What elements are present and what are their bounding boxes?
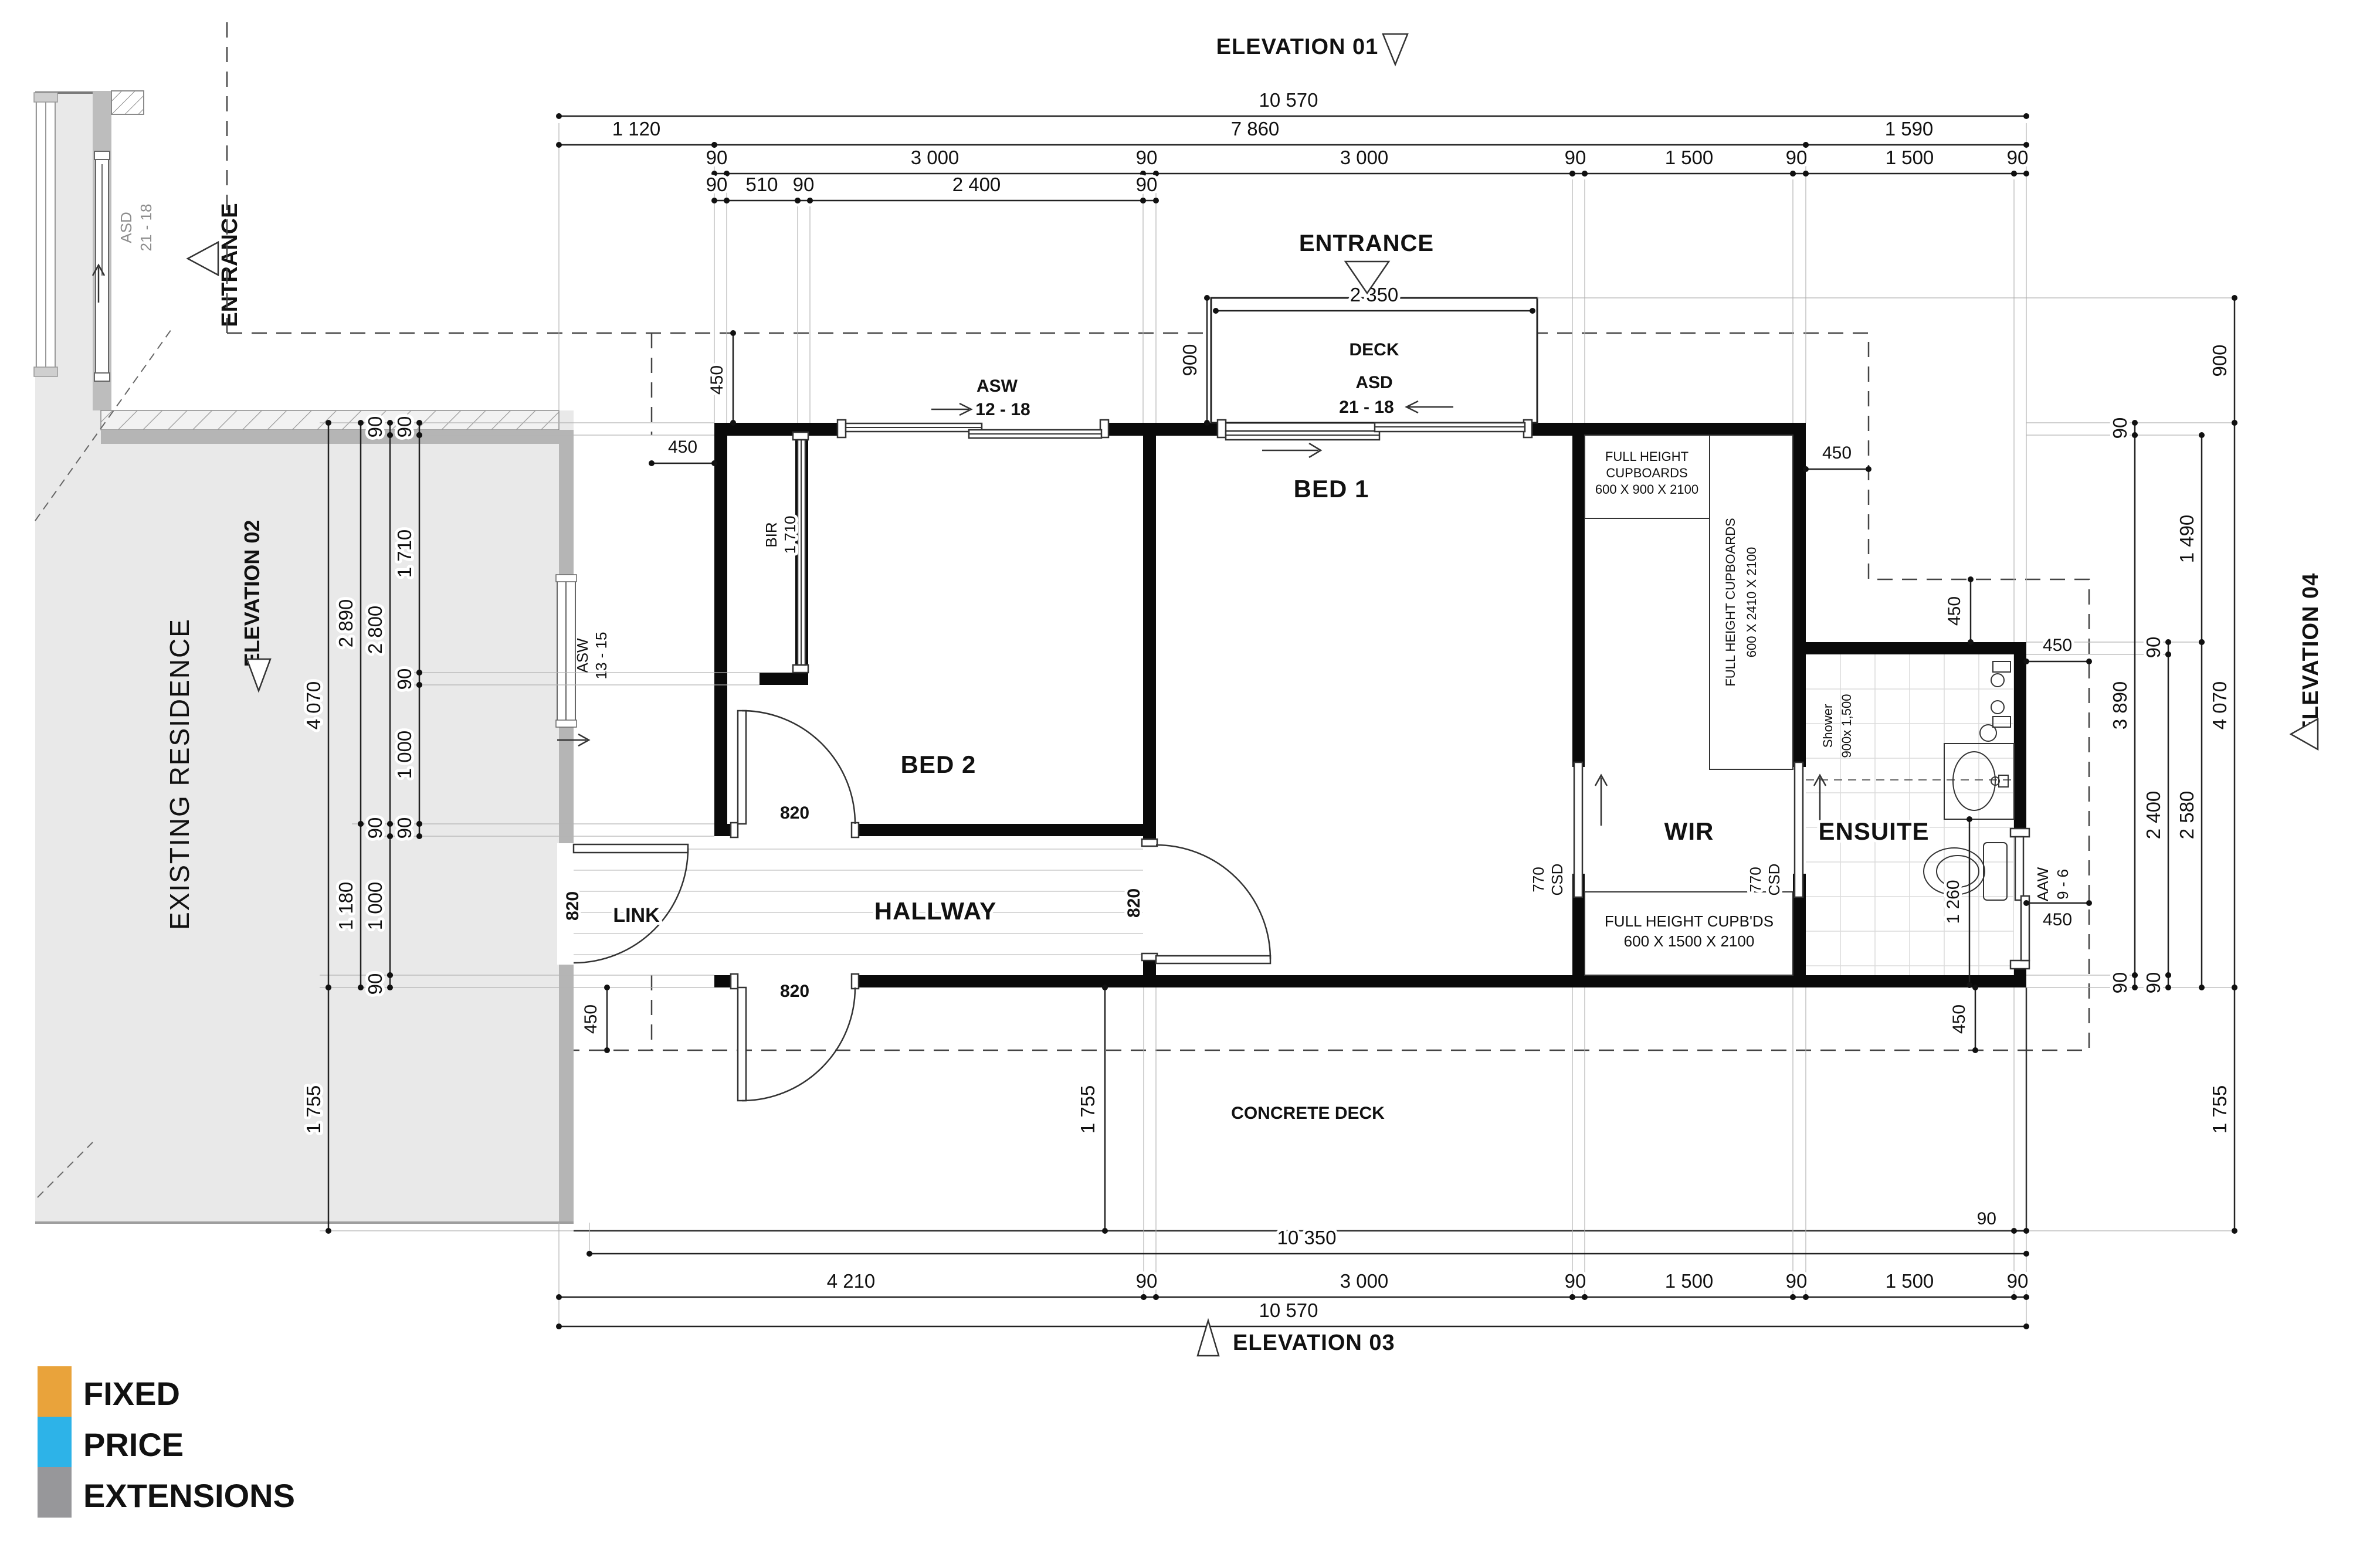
dim-left4-1000: 1 000 — [394, 731, 415, 779]
wall-hallway-north — [852, 824, 1156, 836]
dim-450-east-bottom: 450 — [2043, 910, 2072, 929]
dim-left3-90a: 90 — [364, 416, 386, 438]
dim-top3-90d: 90 — [1786, 147, 1808, 168]
dim-450-link-eave: 450 — [668, 437, 697, 457]
floor-plan-drawing: ASD 21 - 18 ENTRANCE ELEVATION 02 EXISTI… — [0, 0, 2353, 1568]
deck-label: DECK — [1349, 340, 1399, 359]
wall-wir-east — [1793, 423, 1806, 767]
elevation-02-label: ELEVATION 02 — [240, 520, 264, 667]
cupboard-900-label-1: FULL HEIGHT — [1605, 449, 1689, 464]
dim-left4-90a: 90 — [394, 416, 415, 438]
shower-label-1: Shower — [1820, 704, 1835, 748]
dim-top4-2400: 2 400 — [952, 174, 1001, 195]
wall-east — [2014, 642, 2026, 836]
dim-top4-90a: 90 — [706, 174, 728, 195]
cupboard-1500-label-2: 600 X 1500 X 2100 — [1624, 932, 1755, 950]
existing-wall-east — [559, 430, 574, 1223]
asd-tag-type: ASD — [1355, 373, 1392, 392]
csd-wir-label-2: CSD — [1548, 864, 1566, 896]
asw-13-15-label-type: ASW — [574, 638, 591, 673]
room-label-bed2: BED 2 — [901, 751, 977, 778]
dim-left4-1710: 1 710 — [394, 530, 415, 578]
room-label-bed1: BED 1 — [1294, 475, 1369, 503]
concrete-deck: CONCRETE DECK — [574, 987, 2026, 1231]
dim-450-bed2-eave: 450 — [707, 365, 727, 395]
dim-left3-90c: 90 — [364, 973, 386, 995]
wall-bed2-east — [1143, 423, 1156, 846]
aaw-tag-size: 9 - 6 — [2054, 869, 2071, 900]
asw-13-15-label-size: 13 - 15 — [592, 632, 610, 680]
existing-wall-end-cap — [111, 91, 144, 114]
dim-top4-510: 510 — [745, 174, 778, 195]
entrance-west-label: ENTRANCE — [218, 203, 242, 327]
dim-450-wir-eave: 450 — [1822, 443, 1852, 463]
dim-top-1590: 1 590 — [1885, 118, 1934, 140]
dim-450-south-right: 450 — [1949, 1004, 1969, 1034]
dim-bottom-10570: 10 570 — [1259, 1299, 1318, 1321]
dim-top3-1500a: 1 500 — [1665, 147, 1714, 168]
dim-right3-2580: 2 580 — [2176, 791, 2198, 840]
existing-residence-label: EXISTING RESIDENCE — [164, 618, 195, 930]
elevation-03-label: ELEVATION 03 — [1233, 1331, 1395, 1355]
dim-left4-90b: 90 — [394, 668, 415, 690]
dim-left-2890: 2 890 — [335, 599, 357, 648]
dim-right1-3890: 3 890 — [2109, 681, 2131, 730]
csd-ensuite-label-1: 770 — [1747, 867, 1764, 892]
aaw-tag-type: AAW — [2034, 867, 2052, 901]
dim-top-7860: 7 860 — [1231, 118, 1280, 140]
existing-asd-label-type: ASD — [117, 212, 135, 243]
dim-left3-2800: 2 800 — [364, 606, 386, 654]
dim-left-1755: 1 755 — [303, 1085, 324, 1134]
logo-text-fixed: FIXED — [83, 1375, 180, 1412]
logo-text-extensions: EXTENSIONS — [83, 1477, 295, 1514]
dim-right2-90b: 90 — [2142, 972, 2164, 994]
dim-chains-right: 90 3 890 90 90 2 400 90 1 490 2 580 900 … — [2109, 295, 2323, 1234]
dim-right1-90b: 90 — [2109, 972, 2131, 994]
logo-blue-square — [38, 1417, 72, 1467]
cupboard-900-label-2: CUPBOARDS — [1606, 466, 1687, 480]
dim-left3-1000: 1 000 — [364, 882, 386, 931]
bir-length-label: 1 710 — [781, 515, 799, 554]
deck-door-820: 820 — [780, 982, 809, 1001]
bir-label: BIR — [762, 522, 780, 547]
cupboard-2410-label-2: 600 X 2410 X 2100 — [1744, 547, 1759, 657]
room-label-link: LINK — [613, 904, 660, 926]
shower-label-2: 900x 1,500 — [1839, 694, 1854, 758]
bed1-door-820: 820 — [1124, 888, 1144, 918]
room-label-wir: WIR — [1664, 817, 1714, 845]
dim-bottom-10350: 10 350 — [1277, 1227, 1337, 1248]
cupboard-900-label-3: 600 X 900 X 2100 — [1595, 482, 1698, 497]
elevation-01-triangle-icon — [1383, 34, 1408, 65]
dim-top4-90c: 90 — [1136, 174, 1158, 195]
dim-top3-3000a: 3 000 — [911, 147, 959, 168]
dim-bot-90d: 90 — [2007, 1270, 2029, 1292]
dim-right2-90a: 90 — [2142, 637, 2164, 659]
dim-top3-90a: 90 — [706, 147, 728, 168]
bed2-door-820: 820 — [780, 803, 809, 823]
wall-west — [714, 423, 727, 836]
dim-left4-90c: 90 — [394, 817, 415, 839]
dim-top4-90b: 90 — [793, 174, 815, 195]
csd-wir-label-1: 770 — [1530, 867, 1547, 892]
dim-left-1180: 1 180 — [335, 882, 357, 931]
logo-orange-square — [38, 1366, 72, 1417]
dim-top3-90c: 90 — [1565, 147, 1586, 168]
asw-12-18-arrow-icon — [931, 403, 971, 415]
dim-bot-3000: 3 000 — [1340, 1270, 1389, 1292]
dim-right2-2400: 2 400 — [2142, 791, 2164, 840]
dim-chains-top: 10 570 1 120 7 860 1 590 90 3 000 90 3 0… — [556, 34, 2029, 203]
entrance-top-label: ENTRANCE — [1299, 230, 1434, 256]
csd-ensuite-label-2: CSD — [1765, 864, 1783, 896]
existing-residence-footprint — [35, 91, 574, 1223]
dim-top-1120: 1 120 — [612, 118, 661, 140]
dim-left-4070: 4 070 — [303, 681, 324, 730]
dim-top-10570: 10 570 — [1259, 89, 1318, 111]
dim-1260-toilet: 1 260 — [1944, 880, 1963, 924]
dim-right4-4070: 4 070 — [2209, 681, 2230, 730]
dim-top3-90e: 90 — [2007, 147, 2029, 168]
dim-1755-deck-mid: 1 755 — [1077, 1085, 1098, 1134]
cupboard-1500-label-1: FULL HEIGHT CUPB'DS — [1605, 912, 1774, 930]
cupboard-2410-label-1: FULL HEIGHT CUPBOARDS — [1723, 518, 1738, 686]
dim-top3-90b: 90 — [1136, 147, 1158, 168]
dim-top3-1500b: 1 500 — [1886, 147, 1934, 168]
dim-bot-90c: 90 — [1786, 1270, 1808, 1292]
elevation-01-label: ELEVATION 01 — [1216, 35, 1379, 59]
dim-450-east-top: 450 — [2043, 636, 2072, 655]
new-extension: FULL HEIGHT CUPBOARDS 600 X 900 X 2100 F… — [563, 298, 2071, 1101]
fixed-price-extensions-logo: FIXED PRICE EXTENSIONS — [38, 1366, 295, 1518]
dim-right4-1755: 1 755 — [2209, 1085, 2230, 1134]
existing-asd-label-size: 21 - 18 — [137, 204, 155, 252]
concrete-deck-label: CONCRETE DECK — [1231, 1104, 1385, 1123]
dim-deck-900: 900 — [1179, 344, 1201, 376]
elevation-04-label: ELEVATION 04 — [2298, 573, 2323, 735]
logo-text-price: PRICE — [83, 1426, 184, 1463]
dim-450-south-left: 450 — [581, 1004, 601, 1034]
dim-right4-900: 900 — [2209, 344, 2230, 376]
link-door-820: 820 — [563, 891, 582, 921]
wall-ensuite-north — [1806, 642, 2026, 654]
existing-residence: ASD 21 - 18 ENTRANCE ELEVATION 02 EXISTI… — [34, 91, 610, 1223]
asw-12-18-tag-size: 12 - 18 — [975, 400, 1030, 419]
dim-right3-1490: 1 490 — [2176, 515, 2198, 564]
floor-plan-page: ASD 21 - 18 ENTRANCE ELEVATION 02 EXISTI… — [0, 0, 2353, 1568]
dim-bot-4210: 4 210 — [827, 1270, 876, 1292]
logo-gray-square — [38, 1467, 72, 1518]
dim-bot-1500a: 1 500 — [1665, 1270, 1714, 1292]
dim-left3-90b: 90 — [364, 817, 386, 839]
room-label-hallway: HALLWAY — [874, 897, 996, 925]
dim-bot-1500b: 1 500 — [1886, 1270, 1934, 1292]
wall-wir-west — [1572, 423, 1585, 767]
dim-bot-90b: 90 — [1565, 1270, 1586, 1292]
door-existing-to-link — [574, 844, 688, 963]
dim-right1-90a: 90 — [2109, 418, 2131, 439]
entrance-west-triangle-icon — [188, 242, 218, 275]
dim-bot-90a: 90 — [1136, 1270, 1158, 1292]
asd-tag-size: 21 - 18 — [1339, 398, 1394, 417]
dim-450-ensuite-step: 450 — [1945, 596, 1964, 626]
dim-deck-2350: 2 350 — [1350, 284, 1399, 306]
dim-deckedge-90: 90 — [1977, 1209, 1996, 1228]
room-label-ensuite: ENSUITE — [1818, 817, 1929, 845]
wall-south — [852, 975, 2026, 987]
dim-top3-3000b: 3 000 — [1340, 147, 1389, 168]
asw-12-18-tag-type: ASW — [977, 376, 1018, 396]
